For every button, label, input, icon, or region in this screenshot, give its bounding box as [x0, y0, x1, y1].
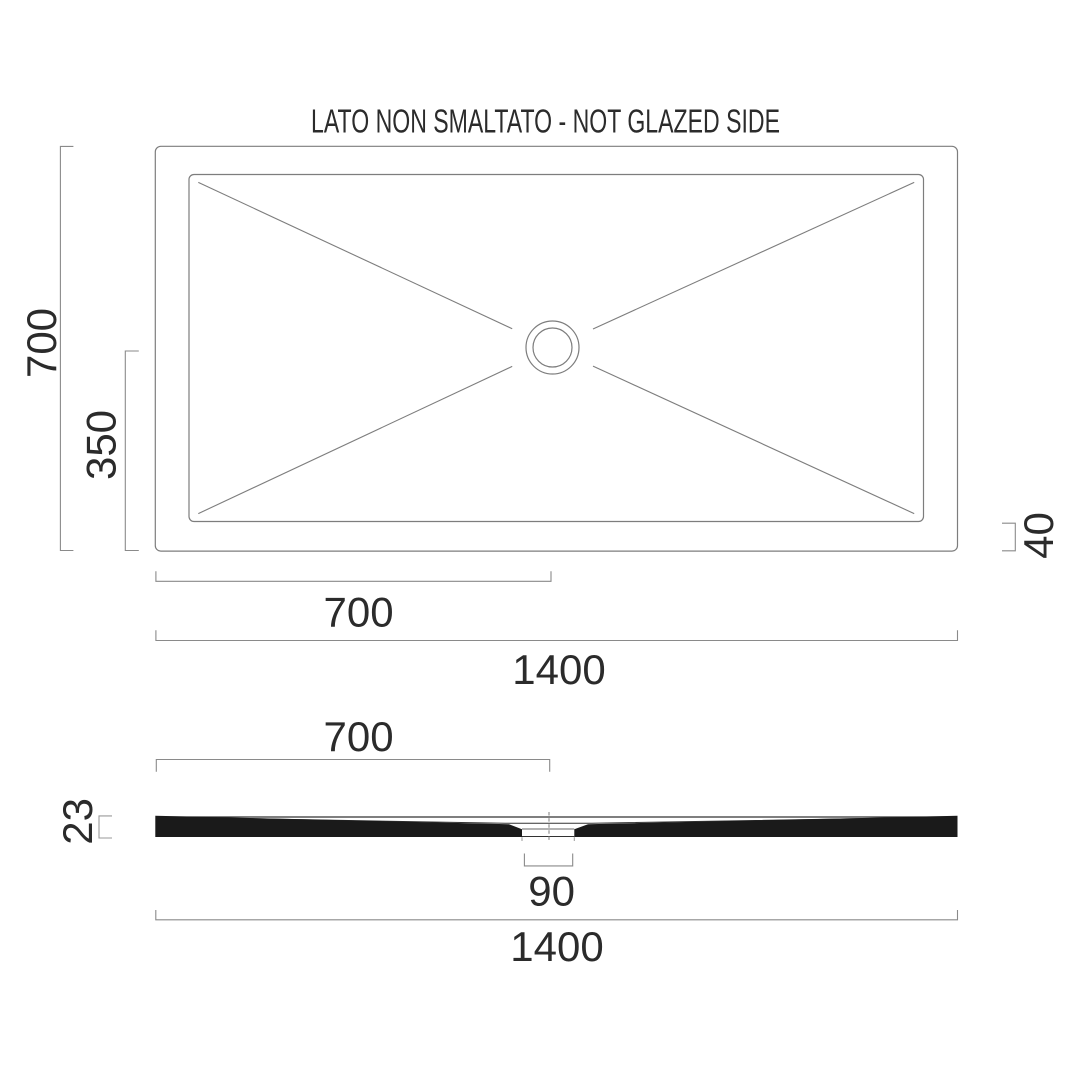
- svg-text:700: 700: [324, 713, 394, 760]
- svg-text:1400: 1400: [512, 646, 605, 693]
- svg-text:90: 90: [528, 868, 575, 915]
- svg-text:1400: 1400: [510, 923, 603, 970]
- svg-text:23: 23: [54, 798, 101, 845]
- svg-text:LATO NON SMALTATO - NOT GLAZED: LATO NON SMALTATO - NOT GLAZED SIDE: [311, 103, 780, 140]
- svg-text:700: 700: [18, 308, 65, 378]
- svg-text:40: 40: [1015, 512, 1062, 559]
- svg-text:700: 700: [324, 589, 394, 636]
- svg-text:350: 350: [78, 410, 125, 480]
